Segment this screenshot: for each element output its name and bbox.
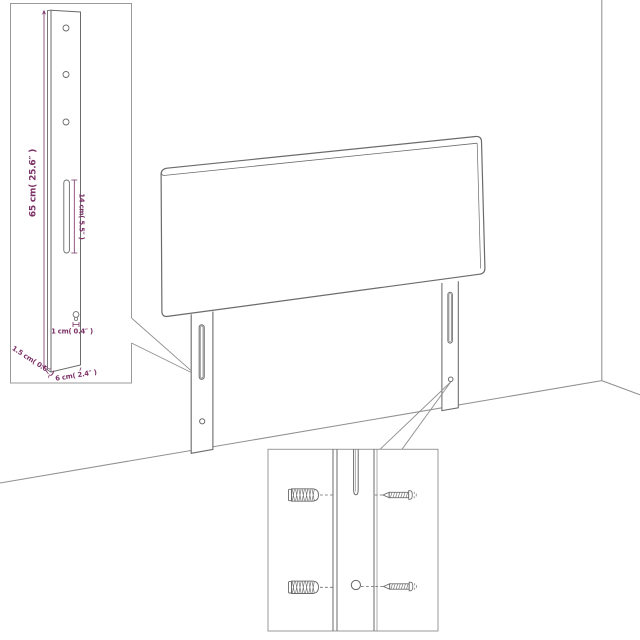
- screw-head: [409, 491, 413, 500]
- product-diagram-canvas: 65 cm( 25.6″ ) 14 cm( 5.5″ ) 1 cm( 0.4″ …: [0, 0, 640, 640]
- inset-leg-dimensions: 65 cm( 25.6″ ) 14 cm( 5.5″ ) 1 cm( 0.4″ …: [10, 4, 131, 384]
- callout-line-inset2-b: [402, 382, 451, 449]
- callout-lines: [132, 318, 451, 449]
- floor-edge-right: [602, 381, 640, 395]
- callout-line-inset1-a: [132, 318, 192, 371]
- panel-outline: [161, 136, 485, 316]
- headboard: [161, 136, 485, 453]
- diagram-svg: 65 cm( 25.6″ ) 14 cm( 5.5″ ) 1 cm( 0.4″ …: [0, 0, 640, 640]
- label-hole-1cm: 1 cm( 0.4″ ): [51, 328, 93, 336]
- headboard-leg-left: [191, 312, 213, 454]
- leg-left-outline: [191, 312, 213, 454]
- label-slot-14cm: 14 cm( 5.5″ ): [78, 193, 86, 239]
- inset-mounting: [268, 449, 438, 631]
- callout-line-inset2-a: [380, 382, 451, 449]
- headboard-panel: [161, 136, 485, 316]
- inset2-border: [268, 449, 438, 631]
- inset1-bracket: [48, 10, 81, 372]
- callout-line-inset1-b: [132, 343, 192, 372]
- label-height-65cm: 65 cm( 25.6″ ): [29, 149, 39, 217]
